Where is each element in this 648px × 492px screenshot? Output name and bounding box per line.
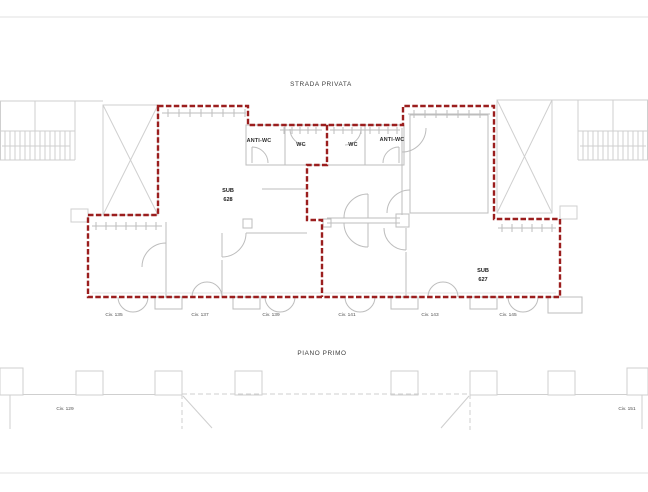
civic-label-137: Civ. 137 (191, 312, 209, 318)
entry-step (470, 297, 497, 309)
door-arc (387, 190, 410, 213)
plan-labels: STRADA PRIVATA PIANO PRIMO ANTI-WC WC WC… (56, 81, 636, 412)
entry-step (548, 297, 582, 313)
door-arc (222, 233, 246, 257)
civic-label-139: Civ. 139 (262, 312, 280, 318)
street-label: STRADA PRIVATA (290, 81, 352, 88)
civic-label-129: Civ. 129 (56, 406, 74, 412)
floor-plan-sheet: STRADA PRIVATA PIANO PRIMO ANTI-WC WC WC… (0, 0, 648, 492)
left-unit-walls (142, 189, 331, 297)
civic-label-145: Civ. 145 (499, 312, 517, 318)
door-arc (118, 297, 148, 312)
door-arc (428, 282, 458, 297)
entry-step (391, 297, 418, 309)
pier-left (71, 209, 88, 222)
door-arc (402, 128, 426, 152)
door-arc (383, 147, 399, 163)
canopy-diagonal (441, 396, 469, 428)
unit-boundary (88, 106, 560, 297)
unit-divider (307, 125, 327, 297)
context-buildings (0, 100, 648, 222)
floor-plan-drawing: STRADA PRIVATA PIANO PRIMO ANTI-WC WC WC… (0, 0, 648, 492)
pillar (548, 371, 575, 395)
door-arc (344, 223, 368, 247)
pillar (470, 371, 497, 395)
room-outline (410, 115, 488, 213)
floor-label: PIANO PRIMO (297, 350, 346, 357)
civic-label-141: Civ. 141 (338, 312, 356, 318)
civic-label-151: Civ. 151 (618, 406, 636, 412)
room-label-wc-left: WC (296, 142, 305, 148)
stairwell-right (497, 100, 552, 213)
door-arc (508, 297, 538, 312)
pier-right (560, 206, 577, 219)
pillar (391, 371, 418, 395)
door-arc (344, 194, 368, 218)
ground-floor-plan (0, 368, 648, 430)
unit-label-627-line2: 627 (478, 277, 487, 283)
unit-label-627-line1: SUB (477, 268, 489, 274)
entry-step (155, 297, 182, 309)
canopy (182, 394, 470, 430)
door-arc (265, 297, 295, 312)
door-arc (384, 228, 406, 250)
civic-label-135: Civ. 135 (105, 312, 123, 318)
room-label-wc-right: WC (348, 142, 357, 148)
canopy-diagonal (183, 396, 212, 428)
pillar (235, 371, 262, 395)
unit-label-628-line1: SUB (222, 188, 234, 194)
column (396, 214, 409, 227)
unit-interior-walls (92, 109, 582, 313)
door-arc (142, 243, 166, 267)
stairwell-left (103, 105, 158, 215)
door-arc (345, 297, 375, 312)
room-label-antiwc-left: ANTI-WC (247, 138, 272, 144)
wc-block (246, 125, 404, 165)
unit-label-628-line2: 628 (223, 197, 232, 203)
door-arc (252, 147, 268, 163)
column (243, 219, 252, 228)
pillar (76, 371, 103, 395)
window-bands (92, 109, 556, 232)
pillar (155, 371, 182, 395)
door-arc (192, 282, 222, 297)
room-label-antiwc-right: ANTI-WC (380, 137, 405, 143)
entry-step (233, 297, 260, 309)
civic-label-143: Civ. 143 (421, 312, 439, 318)
boundary-outline (88, 106, 560, 297)
